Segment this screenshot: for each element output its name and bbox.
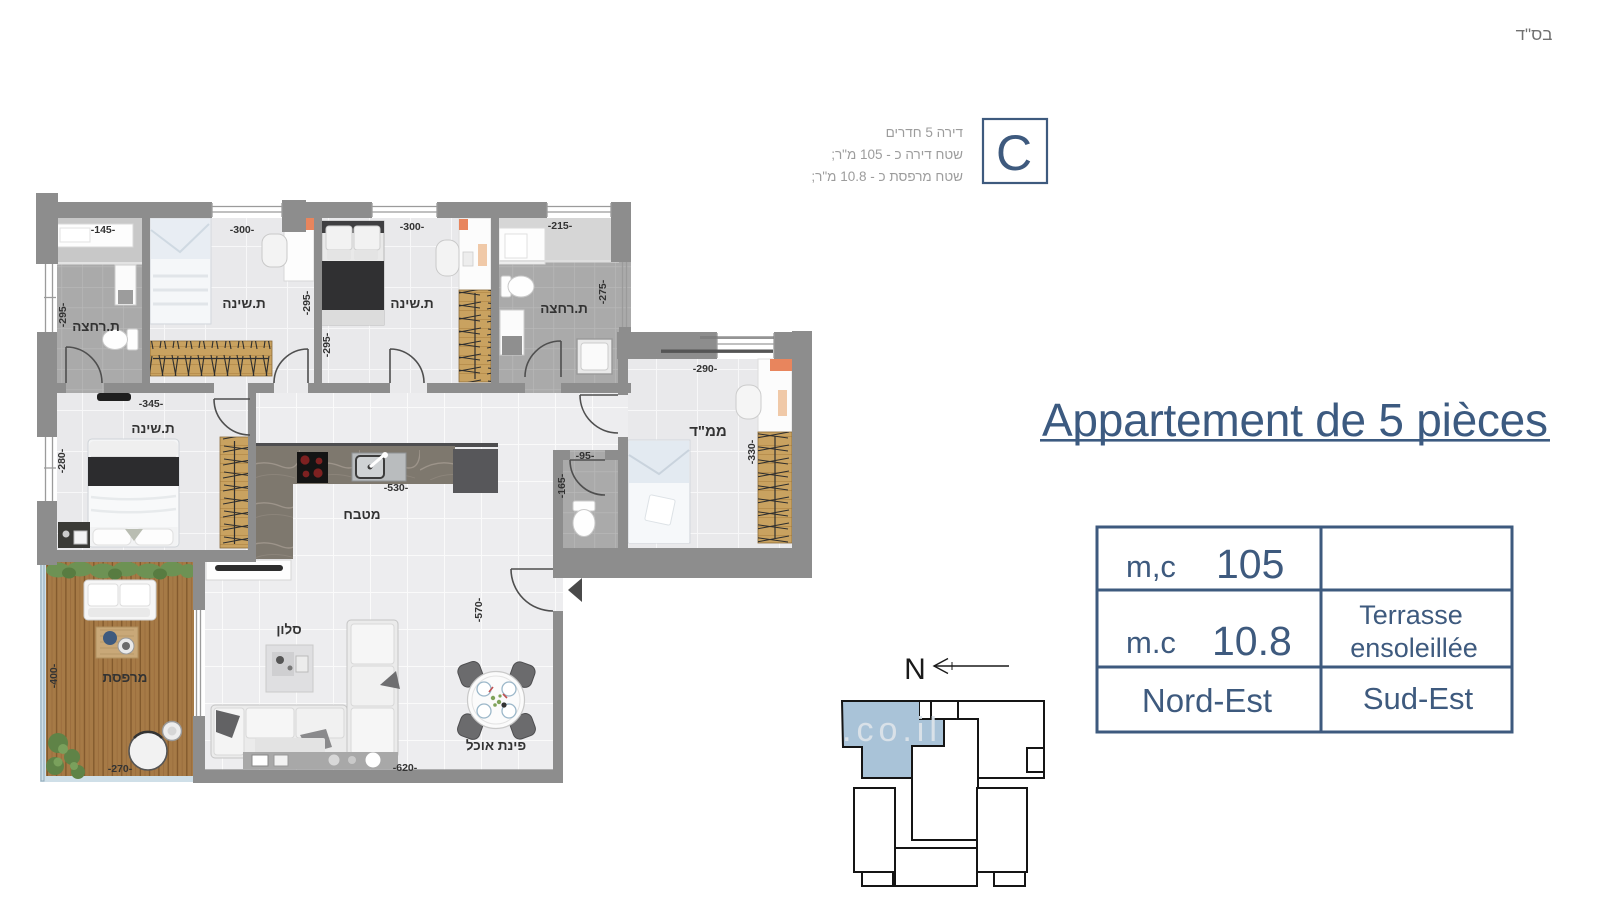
svg-text:סלון: סלון: [276, 622, 301, 637]
svg-text:מרפסת: מרפסת: [103, 670, 148, 685]
svg-text:-570-: -570-: [473, 597, 485, 622]
svg-text:-295-: -295-: [301, 290, 313, 315]
svg-text:ensoleillée: ensoleillée: [1350, 633, 1478, 663]
svg-text:Sud-Est: Sud-Est: [1363, 681, 1474, 716]
svg-text:-300-: -300-: [230, 224, 255, 236]
svg-text:N: N: [904, 653, 926, 686]
svg-text:-145-: -145-: [91, 224, 116, 236]
svg-text:ת.שינה: ת.שינה: [131, 421, 174, 436]
svg-text:ת.שינה: ת.שינה: [390, 296, 433, 311]
svg-text:ממ"ד: ממ"ד: [689, 423, 727, 440]
svg-text:-330-: -330-: [746, 439, 758, 464]
svg-text:-295-: -295-: [57, 302, 69, 327]
svg-text:-215-: -215-: [548, 220, 573, 232]
svg-text:-275-: -275-: [597, 279, 609, 304]
svg-text:ת.רחצה: ת.רחצה: [540, 301, 588, 316]
svg-text:10.8: 10.8: [1212, 618, 1292, 664]
svg-text:בס"ד: בס"ד: [1516, 25, 1553, 44]
svg-text:-300-: -300-: [400, 221, 425, 233]
svg-text:פינת אוכל: פינת אוכל: [466, 738, 527, 753]
svg-text:ת.רחצה: ת.רחצה: [72, 319, 120, 334]
svg-text:-290-: -290-: [693, 363, 718, 375]
svg-text:m,c: m,c: [1126, 549, 1176, 584]
svg-text:-530-: -530-: [384, 482, 409, 494]
svg-text:m.c: m.c: [1126, 625, 1176, 660]
svg-text:-345-: -345-: [139, 398, 164, 410]
svg-text:Terrasse: Terrasse: [1359, 600, 1463, 630]
svg-text:-295-: -295-: [321, 332, 333, 357]
svg-text:C: C: [996, 125, 1032, 181]
svg-text:-400-: -400-: [48, 663, 60, 688]
svg-text:Nord-Est: Nord-Est: [1142, 682, 1272, 719]
svg-text:.co.il: .co.il: [842, 711, 942, 749]
svg-text:-620-: -620-: [393, 762, 418, 774]
svg-text:שטח דירה כ - 105 מ"ר;: שטח דירה כ - 105 מ"ר;: [831, 147, 963, 162]
svg-text:Appartement de 5 pièces: Appartement de 5 pièces: [1042, 394, 1548, 446]
svg-text:105: 105: [1216, 541, 1284, 587]
svg-text:דירה 5 חדרים: דירה 5 חדרים: [886, 125, 964, 140]
svg-text:מטבח: מטבח: [343, 507, 380, 522]
svg-text:-95-: -95-: [576, 450, 595, 462]
svg-text:-270-: -270-: [108, 763, 133, 775]
svg-text:-165-: -165-: [556, 473, 568, 498]
svg-text:שטח מרפסת כ - 10.8 מ"ר;: שטח מרפסת כ - 10.8 מ"ר;: [811, 169, 963, 184]
svg-text:ת.שינה: ת.שינה: [222, 296, 265, 311]
svg-text:-280-: -280-: [56, 448, 68, 473]
